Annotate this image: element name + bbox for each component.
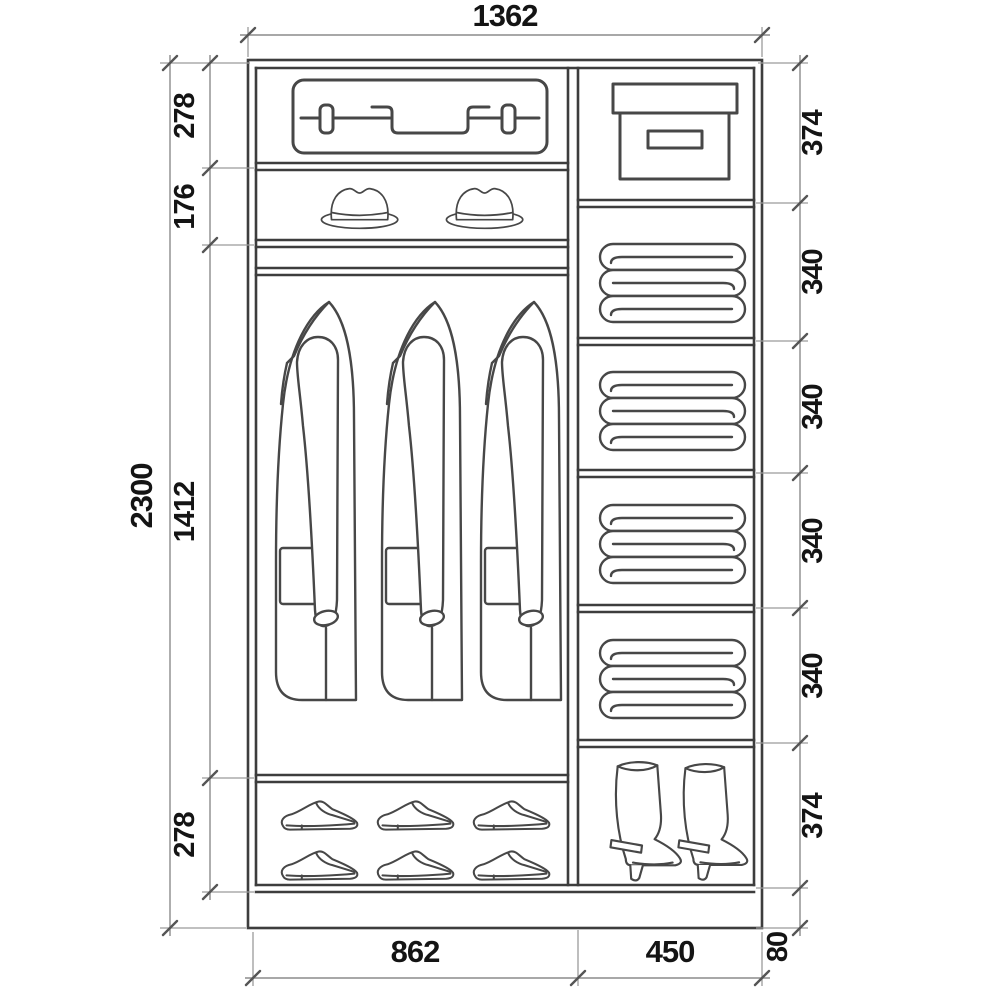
suitcase-icon [293,80,547,153]
dim-bottom-right-width: 450 [646,934,695,969]
dim-right-shelf-1: 340 [797,249,829,294]
dim-right-shelf-2: 340 [797,384,829,429]
dim-left-hat-shelf: 176 [169,183,201,229]
dim-base-height: 80 [762,932,794,962]
dim-right-shelf-3: 340 [797,518,829,563]
dim-left-hanging-section: 1412 [169,482,201,543]
dim-overall-height: 2300 [124,464,159,529]
dim-right-shelf-4: 340 [797,653,829,698]
storage-box-icon [613,84,737,179]
dim-overall-width: 1362 [473,0,538,33]
wardrobe-drawing-page: 1362 2300 278 176 1412 278 374 340 340 3… [0,0,1000,1000]
dim-right-boot-section: 374 [797,792,829,838]
dim-bottom-left-width: 862 [391,934,440,969]
dim-left-shoe-shelf: 278 [169,811,201,857]
dim-left-top-shelf: 278 [169,92,201,138]
wardrobe-diagram: 1362 2300 278 176 1412 278 374 340 340 3… [0,0,1000,1000]
dim-right-box-section: 374 [797,109,829,155]
